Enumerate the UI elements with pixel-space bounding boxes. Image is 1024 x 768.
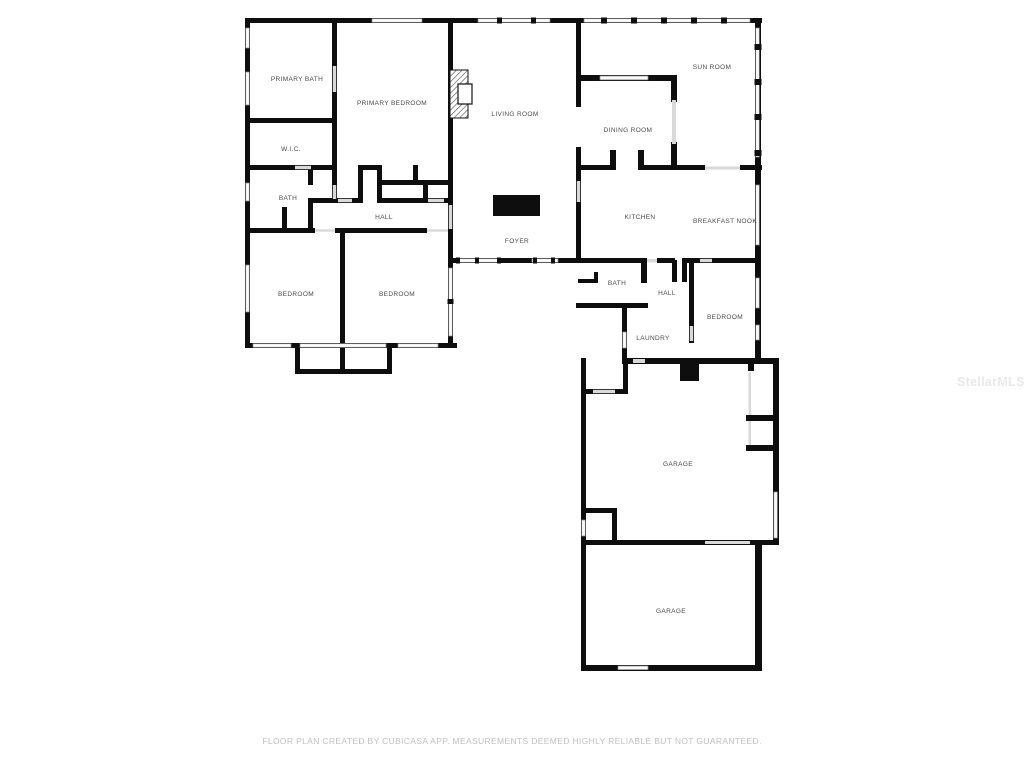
room-label-wic: W.I.C.	[281, 146, 301, 153]
room-label-bedroom-2: BEDROOM	[379, 291, 415, 298]
room-label-bath-right: BATH	[608, 280, 626, 287]
room-label-hall-left: HALL	[375, 214, 393, 221]
foyer-entry-mat	[493, 195, 540, 216]
room-label-living-room: LIVING ROOM	[491, 111, 538, 118]
garage-chimney	[680, 358, 699, 381]
room-label-breakfast-nook: BREAKFAST NOOK	[693, 218, 757, 225]
room-label-bedroom-3: BEDROOM	[707, 314, 743, 321]
room-label-kitchen: KITCHEN	[625, 214, 656, 221]
floor-plan-canvas: PRIMARY BATH PRIMARY BEDROOM W.I.C. BATH…	[0, 0, 1024, 768]
room-label-hall-right: HALL	[658, 290, 676, 297]
room-label-foyer: FOYER	[505, 238, 529, 245]
room-label-dining-room: DINING ROOM	[604, 127, 653, 134]
living-room-fireplace	[450, 70, 472, 118]
room-label-garage-2: GARAGE	[656, 608, 686, 615]
room-label-garage-1: GARAGE	[663, 461, 693, 468]
footer-disclaimer: FLOOR PLAN CREATED BY CUBICASA APP. MEAS…	[0, 736, 1024, 746]
stellar-mls-watermark: StellarMLS	[957, 375, 1024, 389]
room-label-sun-room: SUN ROOM	[693, 64, 732, 71]
room-label-bath-left: BATH	[279, 195, 297, 202]
room-label-bedroom-1: BEDROOM	[278, 291, 314, 298]
room-label-primary-bedroom: PRIMARY BEDROOM	[357, 100, 427, 107]
room-label-primary-bath: PRIMARY BATH	[271, 76, 323, 83]
room-label-laundry: LAUNDRY	[636, 335, 670, 342]
door-openings-layer	[295, 66, 751, 544]
